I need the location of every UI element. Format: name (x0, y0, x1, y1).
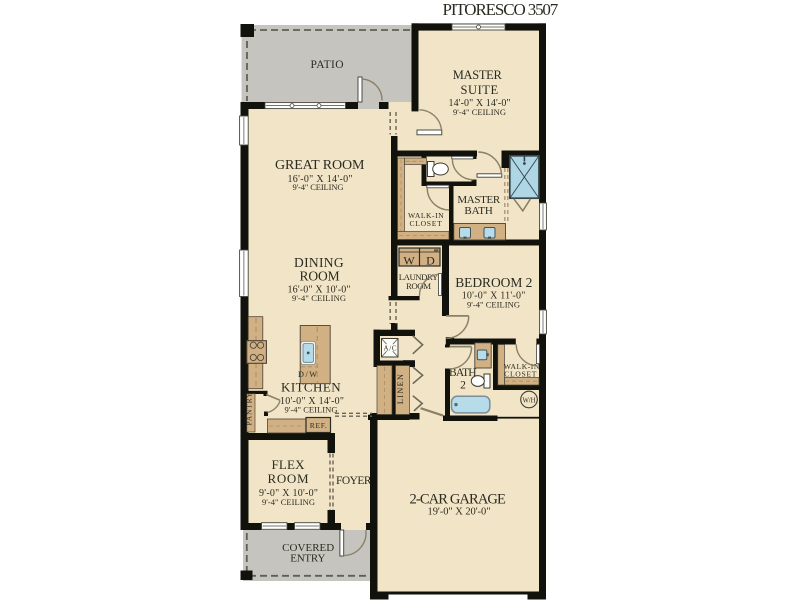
svg-text:MASTER: MASTER (453, 68, 503, 82)
svg-text:9'-4" CEILING: 9'-4" CEILING (453, 107, 506, 117)
svg-text:REF.: REF. (310, 421, 327, 430)
svg-text:PATIO: PATIO (311, 59, 345, 71)
svg-text:CLOSET: CLOSET (409, 219, 442, 228)
svg-text:19'-0" X 20'-0": 19'-0" X 20'-0" (428, 506, 491, 517)
svg-text:BATH: BATH (464, 205, 493, 217)
svg-text:9'-4" CEILING: 9'-4" CEILING (292, 293, 346, 303)
svg-text:CLOSET: CLOSET (504, 370, 537, 379)
svg-text:D/W: D/W (298, 370, 317, 379)
svg-text:ROOM: ROOM (268, 471, 309, 486)
svg-text:ROOM: ROOM (300, 269, 341, 284)
svg-text:ROOM: ROOM (406, 281, 431, 291)
svg-text:A/C: A/C (384, 344, 397, 352)
svg-text:9'-4" CEILING: 9'-4" CEILING (285, 405, 338, 415)
svg-text:PANTRY: PANTRY (244, 392, 253, 426)
svg-text:BEDROOM 2: BEDROOM 2 (455, 275, 533, 290)
svg-text:FLEX: FLEX (272, 457, 306, 472)
svg-text:LINEN: LINEN (396, 374, 405, 404)
svg-text:D: D (426, 254, 435, 268)
svg-text:2: 2 (460, 380, 466, 392)
svg-text:PITORESCO 3507: PITORESCO 3507 (443, 0, 559, 19)
svg-text:W/H: W/H (523, 397, 536, 404)
svg-text:9'-4" CEILING: 9'-4" CEILING (293, 182, 344, 192)
svg-text:9'-4" CEILING: 9'-4" CEILING (467, 299, 520, 309)
svg-text:9'-4" CEILING: 9'-4" CEILING (262, 497, 315, 507)
svg-text:2-CAR GARAGE: 2-CAR GARAGE (410, 492, 507, 508)
svg-text:SUITE: SUITE (461, 83, 499, 97)
svg-text:FOYER: FOYER (336, 475, 372, 487)
svg-text:GREAT ROOM: GREAT ROOM (275, 158, 365, 173)
svg-text:ENTRY: ENTRY (290, 552, 326, 564)
svg-text:W: W (403, 254, 415, 268)
